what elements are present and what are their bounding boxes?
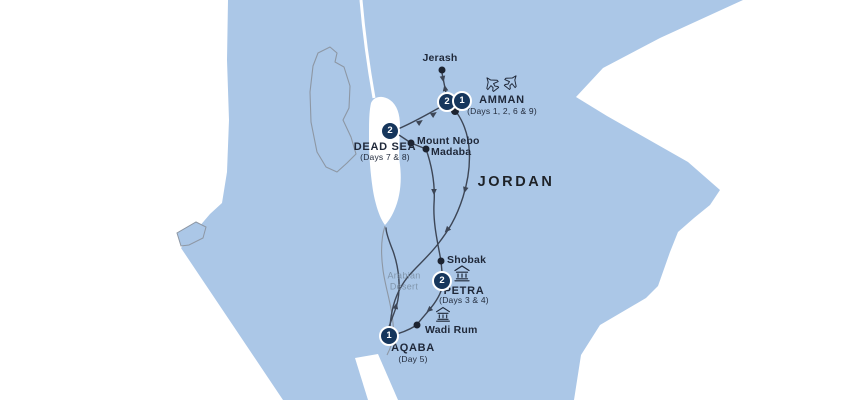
stop-marker-dead-sea: 2 xyxy=(380,121,400,141)
stop-marker-petra: 2 xyxy=(432,271,452,291)
petra-days: (Days 3 & 4) xyxy=(439,295,489,305)
wadi-rum-dot xyxy=(414,322,421,329)
wadi-rum-label: Wadi Rum xyxy=(425,324,478,336)
arabian-desert-label: Arabian Desert xyxy=(387,271,420,292)
jordan-itinerary-map: Jerash AMMAN (Days 1, 2, 6 & 9) DEAD SEA… xyxy=(0,0,860,400)
stop-marker-aqaba: 1 xyxy=(379,326,399,346)
stop-marker-amman-1-number: 1 xyxy=(459,96,464,106)
aqaba-label: AQABA xyxy=(391,342,435,354)
arabian-desert-line1: Arabian xyxy=(387,271,420,282)
shobak-dot xyxy=(438,258,445,265)
country-label: JORDAN xyxy=(478,174,555,190)
stop-marker-amman-2-number: 2 xyxy=(444,97,449,107)
dead-sea-days: (Days 7 & 8) xyxy=(360,152,410,162)
stop-marker-aqaba-number: 1 xyxy=(386,331,391,341)
stop-marker-dead-sea-number: 2 xyxy=(387,126,392,136)
stop-marker-petra-number: 2 xyxy=(439,276,444,286)
amman-days: (Days 1, 2, 6 & 9) xyxy=(467,106,537,116)
stop-marker-amman-1: 1 xyxy=(452,91,472,111)
arabian-desert-line2: Desert xyxy=(387,281,420,292)
jerash-dot xyxy=(439,67,446,74)
madaba-label: Madaba xyxy=(431,146,471,158)
jerash-label: Jerash xyxy=(422,52,457,64)
amman-label: AMMAN xyxy=(479,94,525,106)
aqaba-days: (Day 5) xyxy=(398,354,427,364)
shobak-label: Shobak xyxy=(447,254,486,266)
